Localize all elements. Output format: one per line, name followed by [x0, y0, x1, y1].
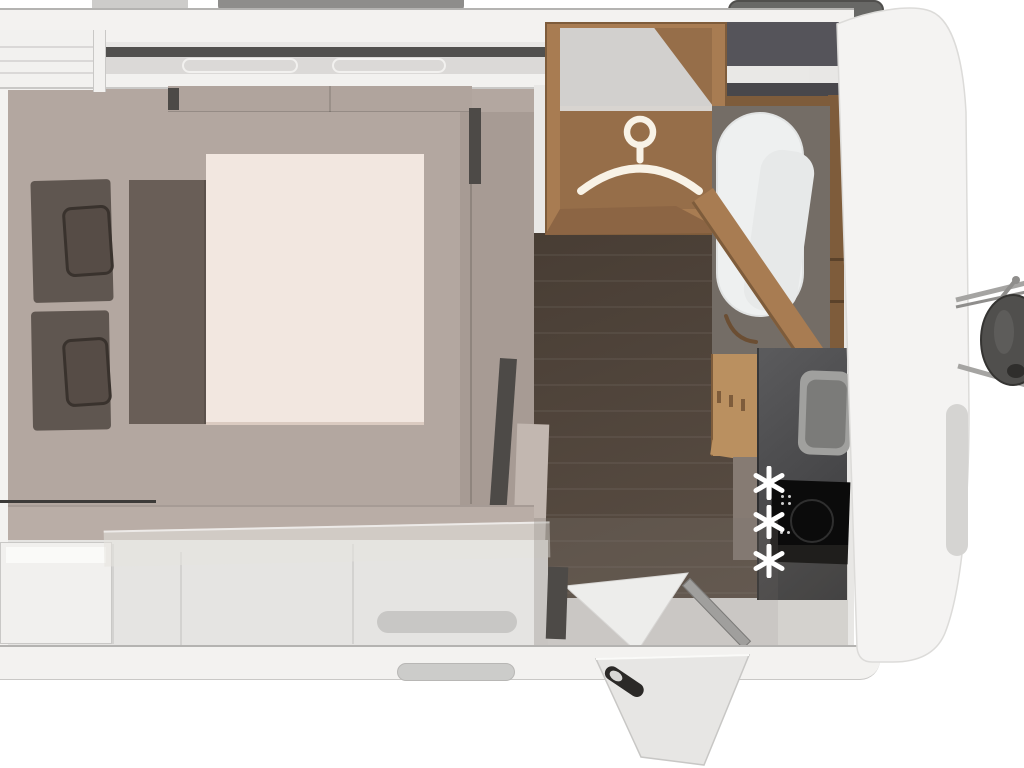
hob-control-dot — [787, 531, 790, 534]
burner-asterisk-icon — [752, 505, 786, 539]
overhead-cabinet-front — [727, 22, 839, 66]
overhead-locker-band — [100, 56, 548, 76]
bench-back-edge — [0, 500, 156, 503]
bed-runner — [129, 180, 207, 424]
wall-shelf-line — [828, 300, 844, 303]
burner-asterisk-icon — [752, 544, 786, 578]
locker-door-recess — [182, 58, 298, 73]
entry-step — [397, 663, 515, 681]
pillow — [62, 336, 113, 407]
burner-asterisk-icon — [752, 466, 786, 500]
drawer-handle-icon — [717, 391, 721, 403]
caravan-floorplan — [0, 0, 1024, 768]
hob-control-dot — [788, 502, 791, 505]
pillow — [62, 204, 115, 277]
bench-storage-lid — [6, 547, 106, 563]
mattress — [206, 154, 424, 425]
bed-edge-post — [469, 108, 481, 184]
drawer-handle-icon — [729, 395, 733, 407]
cabinet-shelf — [727, 66, 809, 83]
locker-door-recess — [332, 58, 446, 73]
overhead-locker-trim — [100, 47, 548, 57]
cabinet-wood-edge — [727, 96, 839, 106]
bench-seam — [180, 552, 182, 648]
entry-partition — [546, 567, 569, 640]
headboard-panel — [168, 86, 472, 112]
hob-burner-symbols — [752, 466, 786, 578]
headboard-seam — [329, 86, 331, 112]
sink-basin — [805, 379, 847, 448]
cabinet-shadow — [727, 83, 839, 96]
drawer-handle-icon — [741, 399, 745, 411]
headboard-post — [168, 88, 179, 110]
gas-locker-shade — [946, 404, 968, 556]
bed-edge-line — [470, 184, 472, 504]
washroom-wood-wall — [828, 95, 844, 361]
locker-divider — [93, 30, 106, 92]
locker-shelf-line — [0, 60, 100, 62]
counter-shadow-overlay — [778, 545, 848, 652]
hob-control-dot — [788, 495, 791, 498]
wardrobe-interior — [560, 111, 712, 209]
locker-shelf-line — [0, 46, 100, 48]
wall-shelf-line — [828, 258, 844, 261]
bench-cushion — [377, 611, 517, 633]
burner-ring-icon — [790, 499, 834, 543]
